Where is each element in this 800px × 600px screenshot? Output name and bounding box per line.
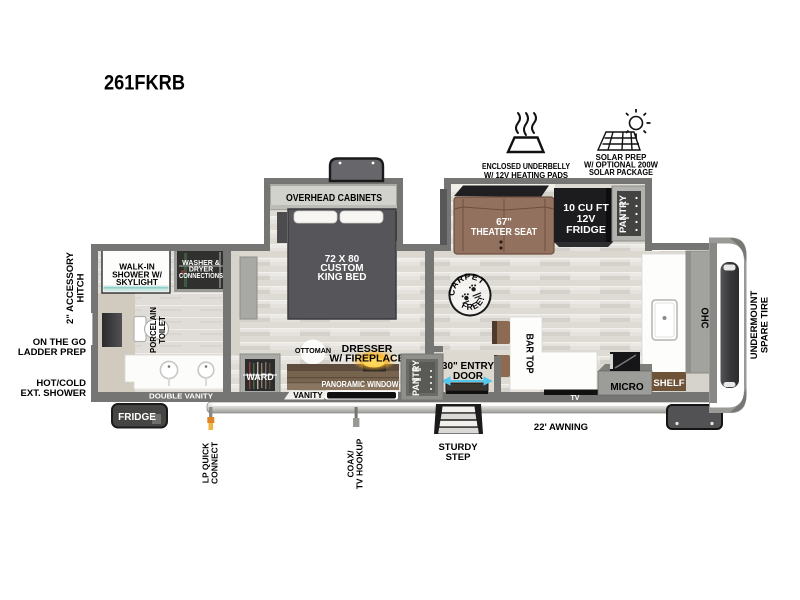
svg-text:PANTRY: PANTRY <box>411 360 421 396</box>
svg-text:OHC: OHC <box>699 308 710 329</box>
svg-text:PANTRY: PANTRY <box>618 194 629 233</box>
svg-text:STEP: STEP <box>446 452 471 463</box>
svg-text:TV: TV <box>571 395 580 402</box>
svg-text:LADDER PREP: LADDER PREP <box>18 347 87 358</box>
svg-text:FRIDGE: FRIDGE <box>566 224 606 236</box>
svg-text:BAR TOP: BAR TOP <box>524 334 536 374</box>
svg-text:WARD: WARD <box>246 372 274 382</box>
svg-text:PANORAMIC WINDOW: PANORAMIC WINDOW <box>322 380 399 389</box>
svg-text:SKYLIGHT: SKYLIGHT <box>116 277 158 287</box>
svg-text:EXT. SHOWER: EXT. SHOWER <box>21 388 87 399</box>
svg-text:SHELF: SHELF <box>653 378 684 389</box>
svg-text:CONNECTIONS: CONNECTIONS <box>179 273 223 280</box>
svg-text:MICRO: MICRO <box>610 382 644 393</box>
svg-text:VANITY: VANITY <box>293 391 323 400</box>
svg-text:W/ FIREPLACE: W/ FIREPLACE <box>329 353 404 365</box>
svg-text:22' AWNING: 22' AWNING <box>534 422 588 433</box>
svg-text:FRIDGE: FRIDGE <box>118 412 156 423</box>
svg-text:DOUBLE VANITY: DOUBLE VANITY <box>149 392 213 401</box>
svg-text:KING BED: KING BED <box>318 272 367 283</box>
svg-text:THEATER SEAT: THEATER SEAT <box>471 227 537 238</box>
svg-text:261FKRB: 261FKRB <box>104 71 185 95</box>
svg-text:ENCLOSED UNDERBELLY: ENCLOSED UNDERBELLY <box>482 162 570 171</box>
svg-text:W/ 12V HEATING PADS: W/ 12V HEATING PADS <box>484 171 568 180</box>
svg-text:OTTOMAN: OTTOMAN <box>295 346 331 355</box>
svg-text:UNDERMOUNTSPARE TIRE: UNDERMOUNTSPARE TIRE <box>749 291 771 360</box>
svg-text:LP QUICKCONNECT: LP QUICKCONNECT <box>201 441 220 484</box>
svg-text:OVERHEAD CABINETS: OVERHEAD CABINETS <box>286 193 382 204</box>
svg-text:SOLAR PACKAGE: SOLAR PACKAGE <box>589 168 653 177</box>
